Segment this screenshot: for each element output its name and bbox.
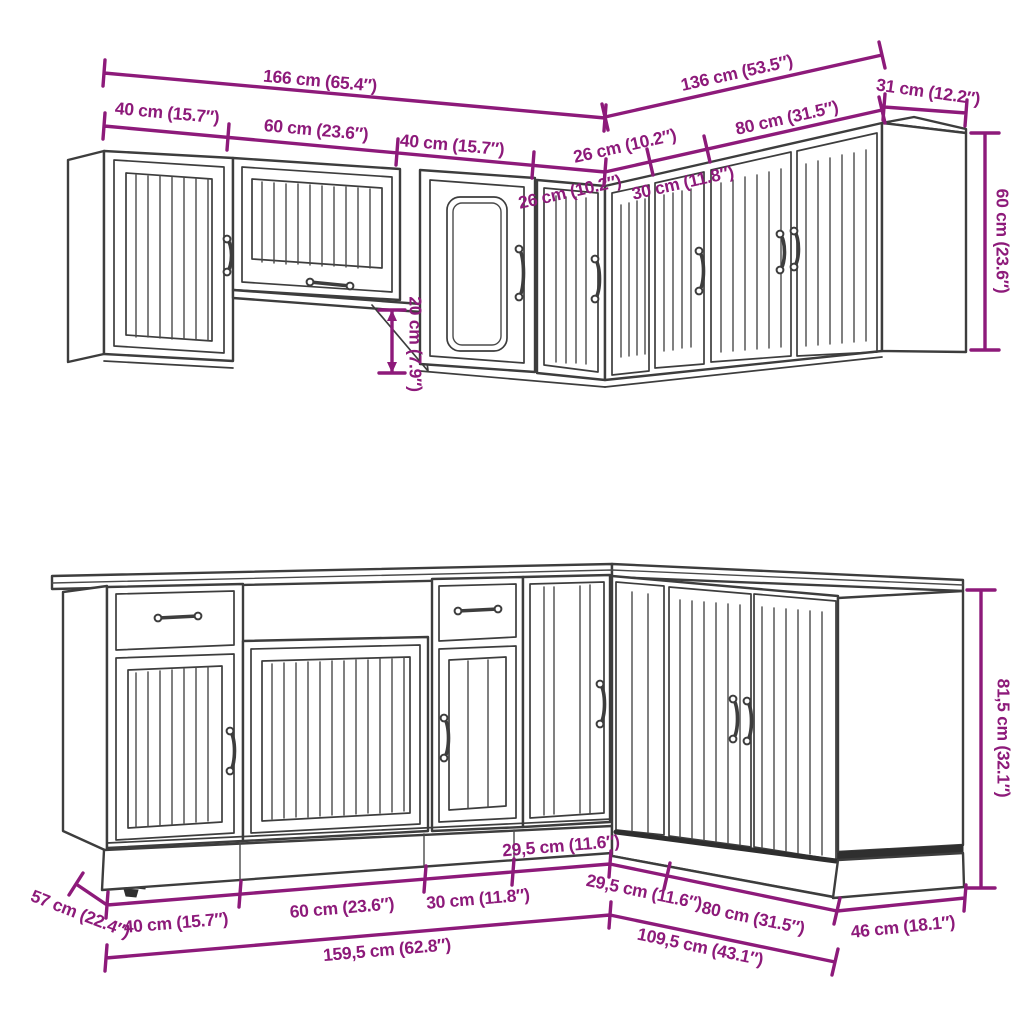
wall-right-side-panel bbox=[882, 117, 966, 352]
dim-label-bridge-gap: 20 cm (7.9″) bbox=[405, 296, 425, 391]
dim-label-base-left-depth: 57 cm (22.4″) bbox=[28, 886, 133, 942]
dim-label-wall-front-60: 60 cm (23.6″) bbox=[263, 115, 369, 144]
base-cabinet-60 bbox=[243, 637, 428, 841]
dim-label-base-front-30: 30 cm (11.8″) bbox=[425, 884, 530, 912]
base-cabinet-40 bbox=[107, 584, 243, 848]
dim-label-base-height: 81,5 cm (32.1″) bbox=[993, 679, 1013, 798]
dim-label-wall-side-depth: 31 cm (12.2″) bbox=[875, 74, 981, 108]
base-return-run bbox=[612, 576, 838, 898]
base-right-side-panel bbox=[833, 591, 964, 898]
dim-label-base-right-depth: 46 cm (18.1″) bbox=[850, 911, 956, 941]
diagram-canvas: 166 cm (65.4″) 40 cm (15.7″) 60 cm (23.6… bbox=[0, 0, 1024, 1024]
wall-cabinet-40 bbox=[104, 151, 233, 368]
dim-label-wall-front-40a: 40 cm (15.7″) bbox=[114, 98, 220, 127]
wall-bridge-cabinet-60 bbox=[233, 158, 428, 371]
dim-label-base-return-80: 80 cm (31.5″) bbox=[700, 897, 807, 938]
cabinet-dimensions-diagram: 166 cm (65.4″) 40 cm (15.7″) 60 cm (23.6… bbox=[0, 0, 1024, 1024]
dim-label-base-return-total: 109,5 cm (43.1″) bbox=[636, 924, 765, 970]
base-corner-cabinet bbox=[523, 575, 610, 827]
dim-label-base-front-40: 40 cm (15.7″) bbox=[123, 908, 229, 937]
dim-label-base-front-60: 60 cm (23.6″) bbox=[289, 893, 395, 922]
wall-left-side-panel bbox=[68, 151, 104, 362]
base-left-side-panel bbox=[63, 586, 107, 851]
base-cabinet-30 bbox=[432, 577, 523, 831]
dim-label-base-return-295: 29,5 cm (11.6″) bbox=[585, 870, 704, 913]
wall-cabinet-assembly bbox=[68, 117, 966, 387]
dim-label-wall-height: 60 cm (23.6″) bbox=[992, 189, 1012, 294]
